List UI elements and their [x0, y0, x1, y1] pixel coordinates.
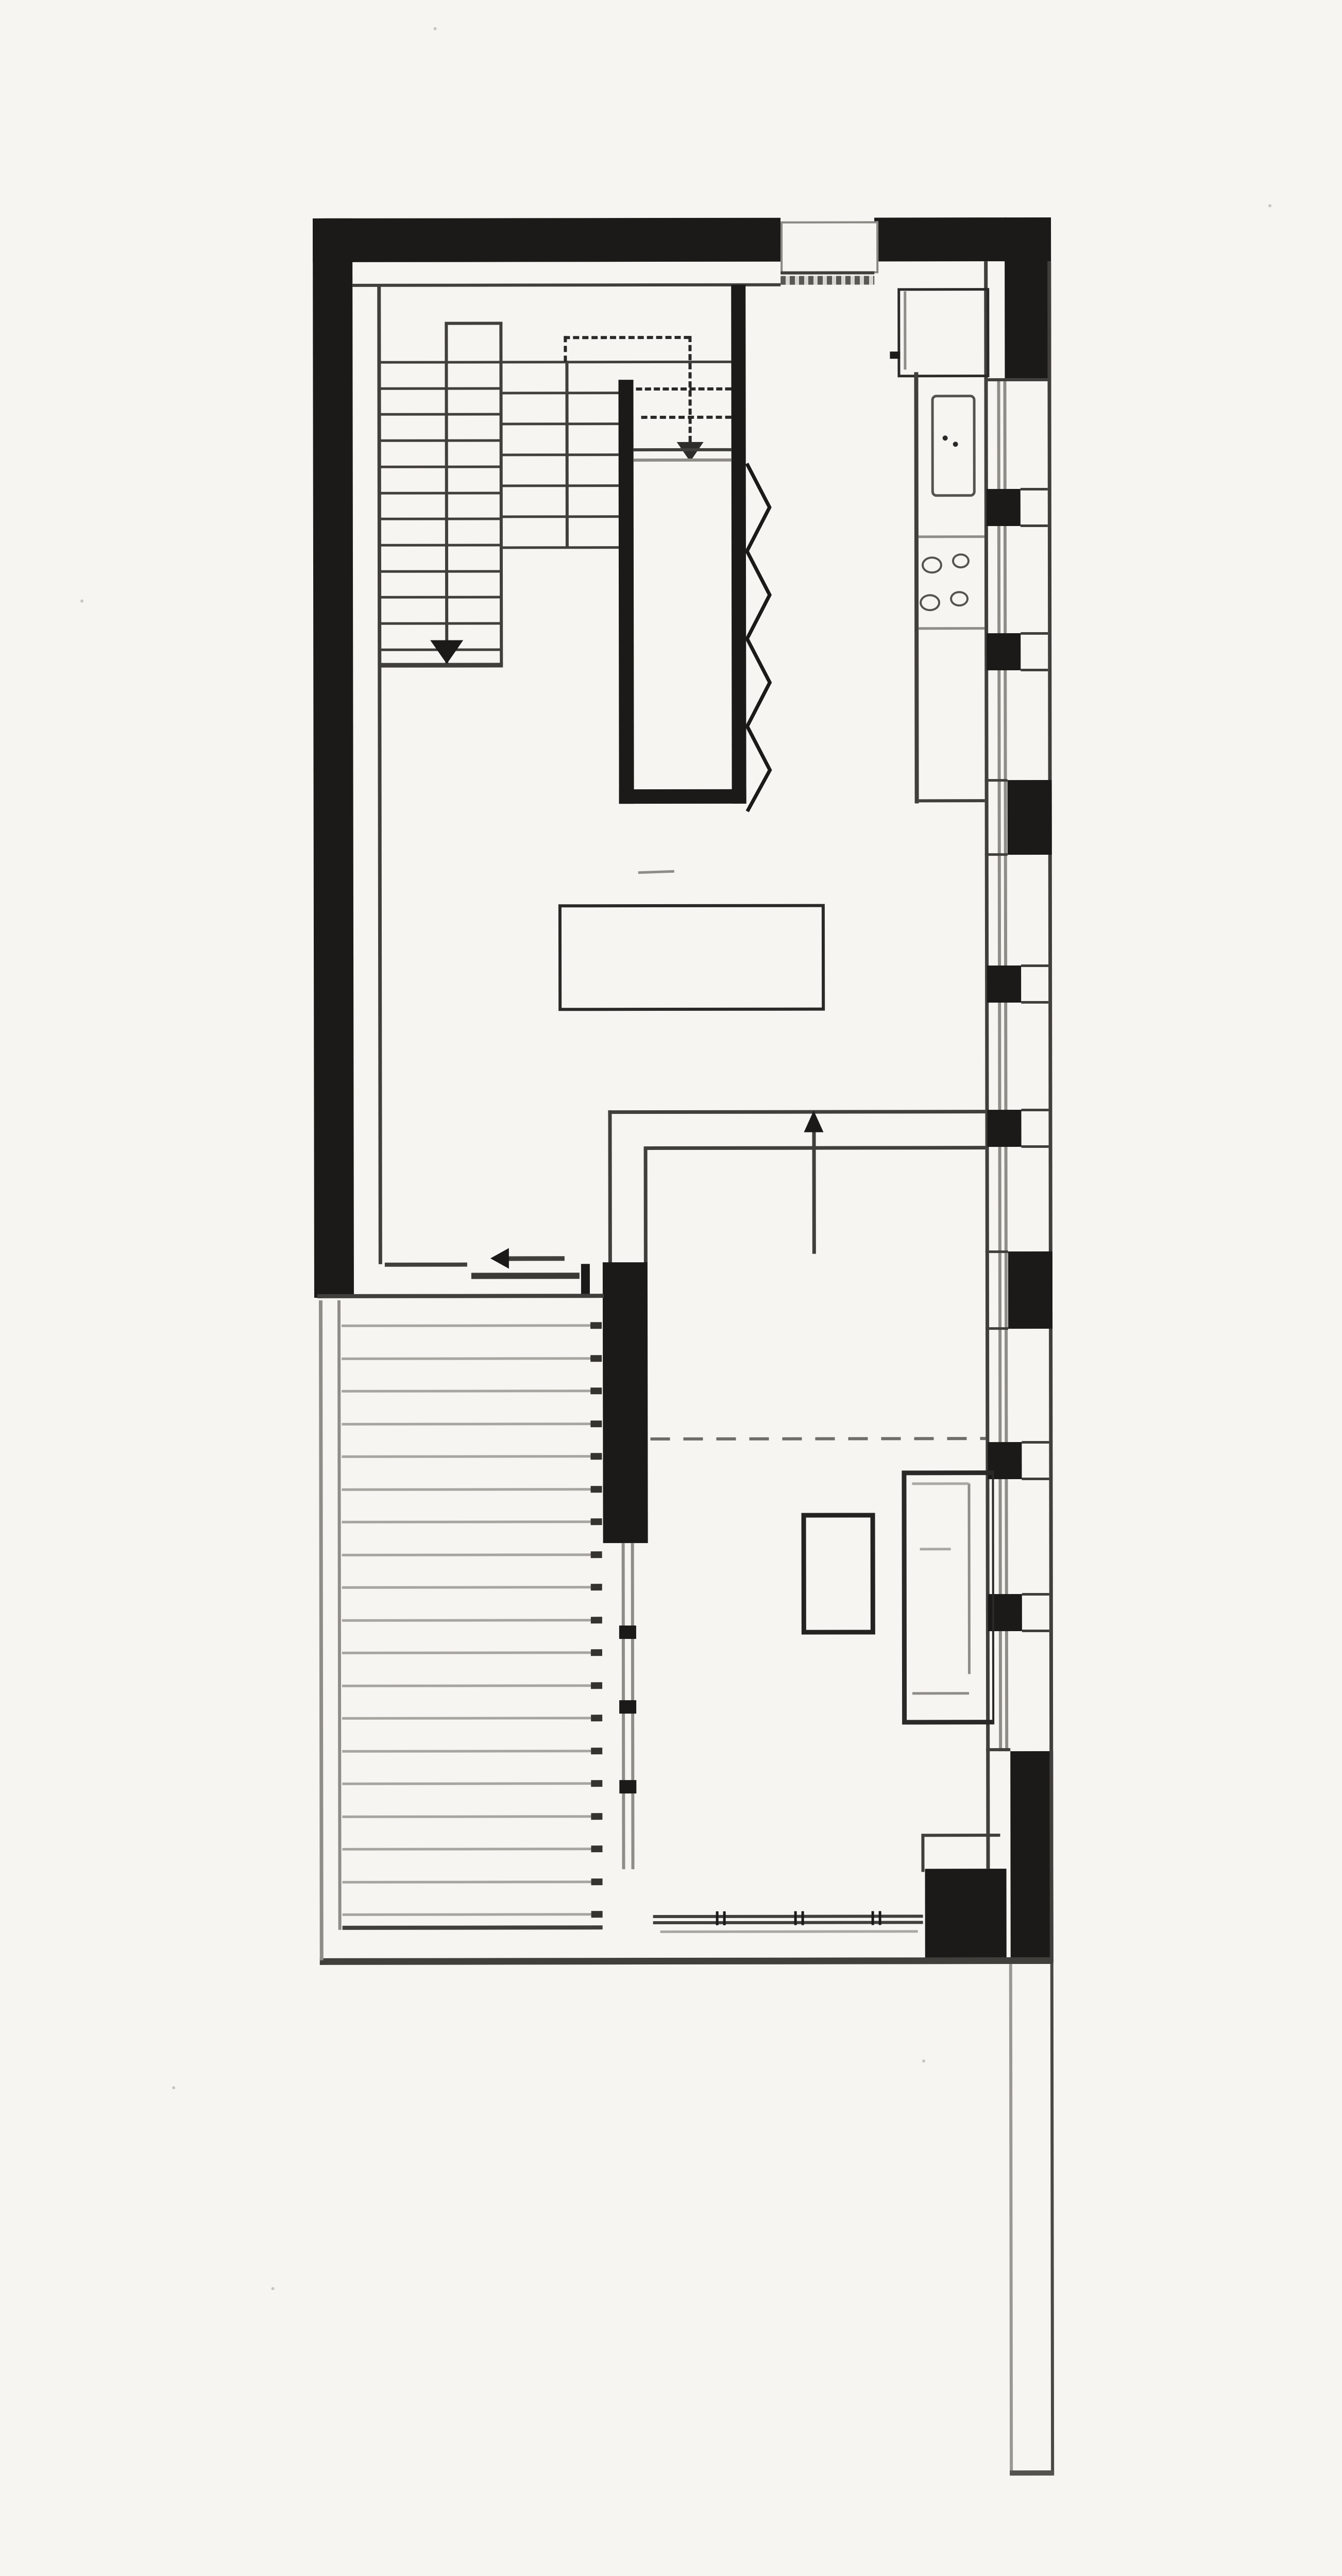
- window-sill-line: [1021, 964, 1048, 967]
- window-sill-line: [985, 779, 1008, 782]
- door-panel-tick: [879, 1911, 881, 1925]
- deck-board: [342, 1324, 590, 1327]
- deck-board: [342, 1357, 590, 1360]
- sink-faucet-dot-2: [953, 442, 958, 447]
- deck-board-end-tick: [591, 1911, 603, 1918]
- glass-wall-pier-2: [619, 1700, 636, 1714]
- deck-board: [342, 1553, 591, 1556]
- stairs-walk-line: [445, 324, 448, 665]
- entry-door-slab: [780, 221, 878, 273]
- stairs-top-tread-full: [380, 361, 731, 364]
- counter-division-line-2: [919, 627, 984, 630]
- terrace-left-rail: [319, 1300, 324, 1960]
- entry-door-mat: [780, 276, 874, 284]
- deck-board-end-tick: [591, 1715, 602, 1721]
- sliding-left-arrowhead: [490, 1248, 509, 1268]
- kitchen-counter-end-line: [919, 799, 985, 802]
- counter-division-line-1: [919, 535, 984, 538]
- sofa-armrest-tick: [920, 1548, 951, 1550]
- deck-board-end-tick: [591, 1551, 602, 1558]
- stair-tread: [501, 422, 619, 425]
- south-door-track-2: [653, 1921, 923, 1924]
- cooktop-burner-4: [950, 591, 969, 606]
- deck-board-end-tick: [591, 1748, 602, 1754]
- cooktop-burner-3: [920, 594, 940, 611]
- deck-board: [343, 1880, 591, 1884]
- bottom-inner-wall-block: [925, 1869, 1007, 1961]
- window-sill-line: [985, 853, 1008, 856]
- window-sill-line: [1021, 1001, 1048, 1004]
- window-inner-pier: [987, 965, 1021, 1003]
- closet-bottom-wall: [619, 789, 746, 804]
- stair-tread: [381, 465, 501, 468]
- scan-speck: [434, 27, 437, 30]
- deck-board: [342, 1717, 591, 1720]
- stair-tread: [501, 453, 619, 456]
- deck-board: [342, 1651, 591, 1654]
- coffee-table: [802, 1513, 875, 1634]
- closet-shelf-line-2: [634, 459, 732, 462]
- door-panel-tick: [716, 1911, 719, 1925]
- window-mullion-line-2: [1003, 378, 1008, 1751]
- stair-tread: [381, 387, 501, 389]
- floor-plan: [0, 0, 1342, 2576]
- sink-faucet-dot-1: [943, 435, 948, 440]
- deck-board-end-tick: [591, 1845, 602, 1852]
- window-sill-top-corner: [984, 378, 1051, 381]
- void-dashed-line-1: [636, 387, 732, 391]
- right-corner-pier-top: [1005, 217, 1051, 378]
- window-inner-pier: [987, 633, 1021, 670]
- deck-board-end-tick: [590, 1387, 602, 1394]
- deck-board-end-tick: [590, 1453, 602, 1460]
- window-outer-pier: [1008, 780, 1052, 855]
- stair-tread: [381, 413, 501, 415]
- window-sill-line: [1022, 1441, 1049, 1444]
- void-dashed-left: [564, 336, 567, 362]
- kitchen-tall-unit: [897, 288, 989, 377]
- terrace-top-edge: [317, 1294, 604, 1298]
- garden-wall-right-line: [1050, 1964, 1054, 2474]
- window-inner-pier: [987, 489, 1021, 526]
- stair-tread: [501, 484, 619, 487]
- terrace-left-inner-line: [337, 1300, 342, 1930]
- door-panel-tick: [872, 1911, 874, 1925]
- stair-tread: [381, 544, 501, 546]
- scan-speck: [922, 2059, 925, 2062]
- top-wall-right-segment: [874, 217, 1007, 261]
- inner-top-wall-line: [352, 283, 780, 287]
- cooktop-burner-2: [952, 553, 970, 568]
- garden-wall-end-cap: [1010, 2470, 1054, 2476]
- terrace-door-jamb: [581, 1264, 590, 1295]
- deck-board: [342, 1455, 590, 1458]
- scan-speck: [80, 600, 83, 603]
- kitchen-counter-edge: [914, 372, 919, 803]
- scan-speck: [1268, 204, 1271, 207]
- sofa-back-line: [967, 1483, 971, 1674]
- window-outer-pier: [1008, 1251, 1052, 1329]
- window-sill-bottom-corner: [986, 1748, 1010, 1751]
- cooktop-burner-1: [922, 556, 942, 573]
- left-wall: [313, 218, 354, 1298]
- stairs-flight-divider: [565, 361, 569, 547]
- void-dashed-line-2: [641, 416, 732, 419]
- hall-partition-inner-leg: [644, 1146, 648, 1263]
- terrace-door-sliding-panel: [471, 1273, 580, 1279]
- closet-shelf-line-1: [634, 448, 732, 451]
- folding-door-zigzag: [743, 461, 775, 817]
- deck-board: [342, 1586, 591, 1589]
- window-sill-line: [986, 1250, 1008, 1253]
- window-sill-line: [1021, 669, 1048, 671]
- deck-board: [342, 1619, 591, 1622]
- stair-tread: [381, 596, 501, 598]
- deck-board: [342, 1815, 591, 1818]
- pen-squiggle: [638, 870, 674, 874]
- dining-table: [558, 904, 825, 1011]
- deck-board-end-tick: [591, 1584, 602, 1590]
- deck-board-end-tick: [590, 1322, 602, 1329]
- deck-board-end-tick: [591, 1649, 602, 1656]
- window-sill-line: [1021, 524, 1048, 527]
- stairs-rail-cap: [445, 321, 502, 325]
- stair-tread: [501, 515, 619, 518]
- bottom-outer-wall-line: [320, 1957, 1054, 1965]
- deck-board-end-tick: [591, 1682, 602, 1689]
- glass-wall-pier-1: [619, 1625, 636, 1639]
- hall-partition-upper-line: [608, 1110, 985, 1114]
- deck-board: [342, 1782, 591, 1785]
- deck-board-end-tick: [590, 1355, 602, 1362]
- interior-left-wall-line: [377, 285, 382, 1264]
- door-panel-tick: [794, 1911, 797, 1925]
- window-sill-line: [986, 1327, 1008, 1330]
- scan-speck: [271, 2287, 275, 2290]
- window-sill-line: [1021, 488, 1048, 490]
- stairs-down-arrowhead: [430, 640, 463, 664]
- deck-board: [342, 1422, 590, 1426]
- window-sill-line: [1022, 1593, 1049, 1596]
- stair-tread: [381, 622, 501, 624]
- stair-tread: [381, 439, 501, 442]
- sofa-cushion-line: [912, 1482, 969, 1485]
- stair-tread: [501, 392, 619, 394]
- glass-wall-pier-3: [619, 1780, 636, 1793]
- deck-board: [342, 1750, 591, 1753]
- sliding-left-arrow-shaft: [508, 1256, 565, 1261]
- deck-board: [342, 1520, 591, 1523]
- hall-partition-left-leg: [608, 1110, 611, 1263]
- top-wall-left-segment: [313, 218, 780, 262]
- window-inner-pier: [987, 1110, 1021, 1147]
- sofa: [902, 1470, 994, 1724]
- window-sill-line: [1021, 1109, 1048, 1111]
- deck-board: [342, 1848, 591, 1851]
- window-mullion-line-1: [997, 378, 1002, 1751]
- window-sill-line: [1021, 632, 1048, 635]
- stair-tread: [381, 492, 501, 494]
- window-sill-line: [1022, 1630, 1049, 1632]
- deck-board-end-tick: [591, 1518, 602, 1525]
- stair-tread: [381, 517, 501, 520]
- deck-board-end-tick: [591, 1780, 602, 1787]
- sofa-seat-line: [912, 1692, 969, 1694]
- hall-terrace-wall-bar: [603, 1262, 648, 1543]
- southeast-step-line-h: [921, 1834, 1000, 1837]
- deck-board: [342, 1488, 590, 1491]
- deck-board-end-tick: [591, 1813, 602, 1820]
- stair-tread: [501, 546, 619, 549]
- closet-left-wall: [618, 380, 634, 804]
- void-dashed-top: [564, 336, 690, 339]
- window-sill-line: [1022, 1478, 1049, 1480]
- south-door-under-line: [660, 1930, 918, 1933]
- stair-tread: [381, 570, 501, 572]
- scan-speck: [172, 2086, 175, 2089]
- stairs-rail-line: [499, 323, 503, 665]
- door-panel-tick: [723, 1911, 726, 1925]
- deck-board: [342, 1684, 591, 1687]
- deck-board-end-tick: [590, 1420, 602, 1427]
- garden-wall-left-line: [1009, 1964, 1013, 2474]
- entry-up-arrow-shaft: [812, 1131, 816, 1254]
- deck-board-end-tick: [591, 1617, 602, 1623]
- deck-bottom-edge: [343, 1925, 603, 1930]
- door-panel-tick: [802, 1911, 804, 1925]
- kitchen-tall-unit-inner-line: [904, 291, 906, 369]
- terrace-door-fixed-line: [385, 1263, 467, 1267]
- window-sill-line: [1022, 1145, 1049, 1148]
- deck-board-end-tick: [590, 1486, 602, 1493]
- kitchen-wall-stub: [890, 351, 900, 359]
- entry-threshold-line: [780, 271, 874, 274]
- deck-board: [342, 1389, 590, 1393]
- deck-board: [343, 1913, 591, 1916]
- south-door-track-1: [653, 1914, 923, 1918]
- entry-up-arrowhead: [804, 1111, 823, 1132]
- southeast-step-line-v: [921, 1834, 924, 1872]
- room-dashed-line: [650, 1437, 986, 1440]
- deck-board-end-tick: [591, 1878, 603, 1885]
- bottom-right-corner-pier: [1010, 1751, 1054, 1962]
- hall-partition-lower-line: [647, 1146, 986, 1150]
